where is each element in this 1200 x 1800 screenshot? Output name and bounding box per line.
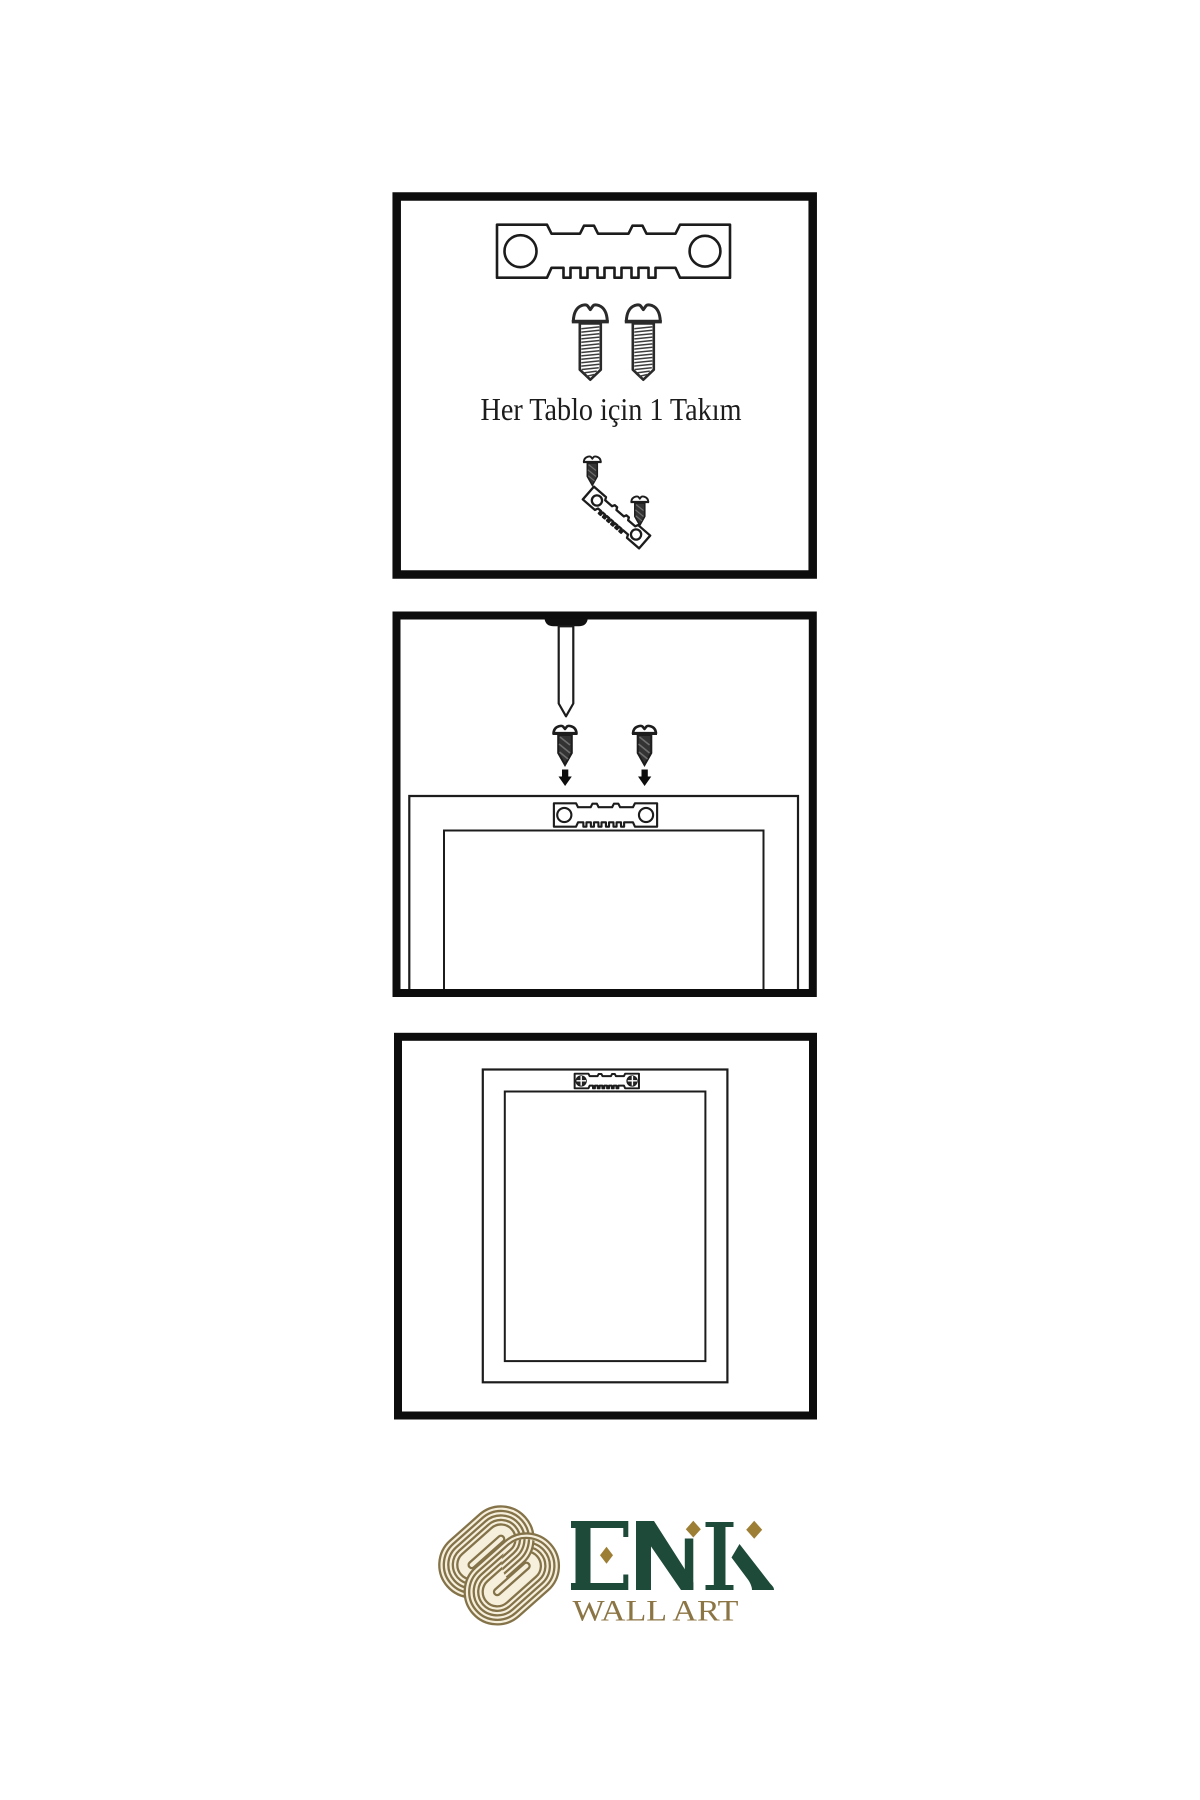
svg-text:WALL ART: WALL ART [573,1595,739,1628]
svg-text:Her Tablo için 1 Takım: Her Tablo için 1 Takım [481,391,742,427]
